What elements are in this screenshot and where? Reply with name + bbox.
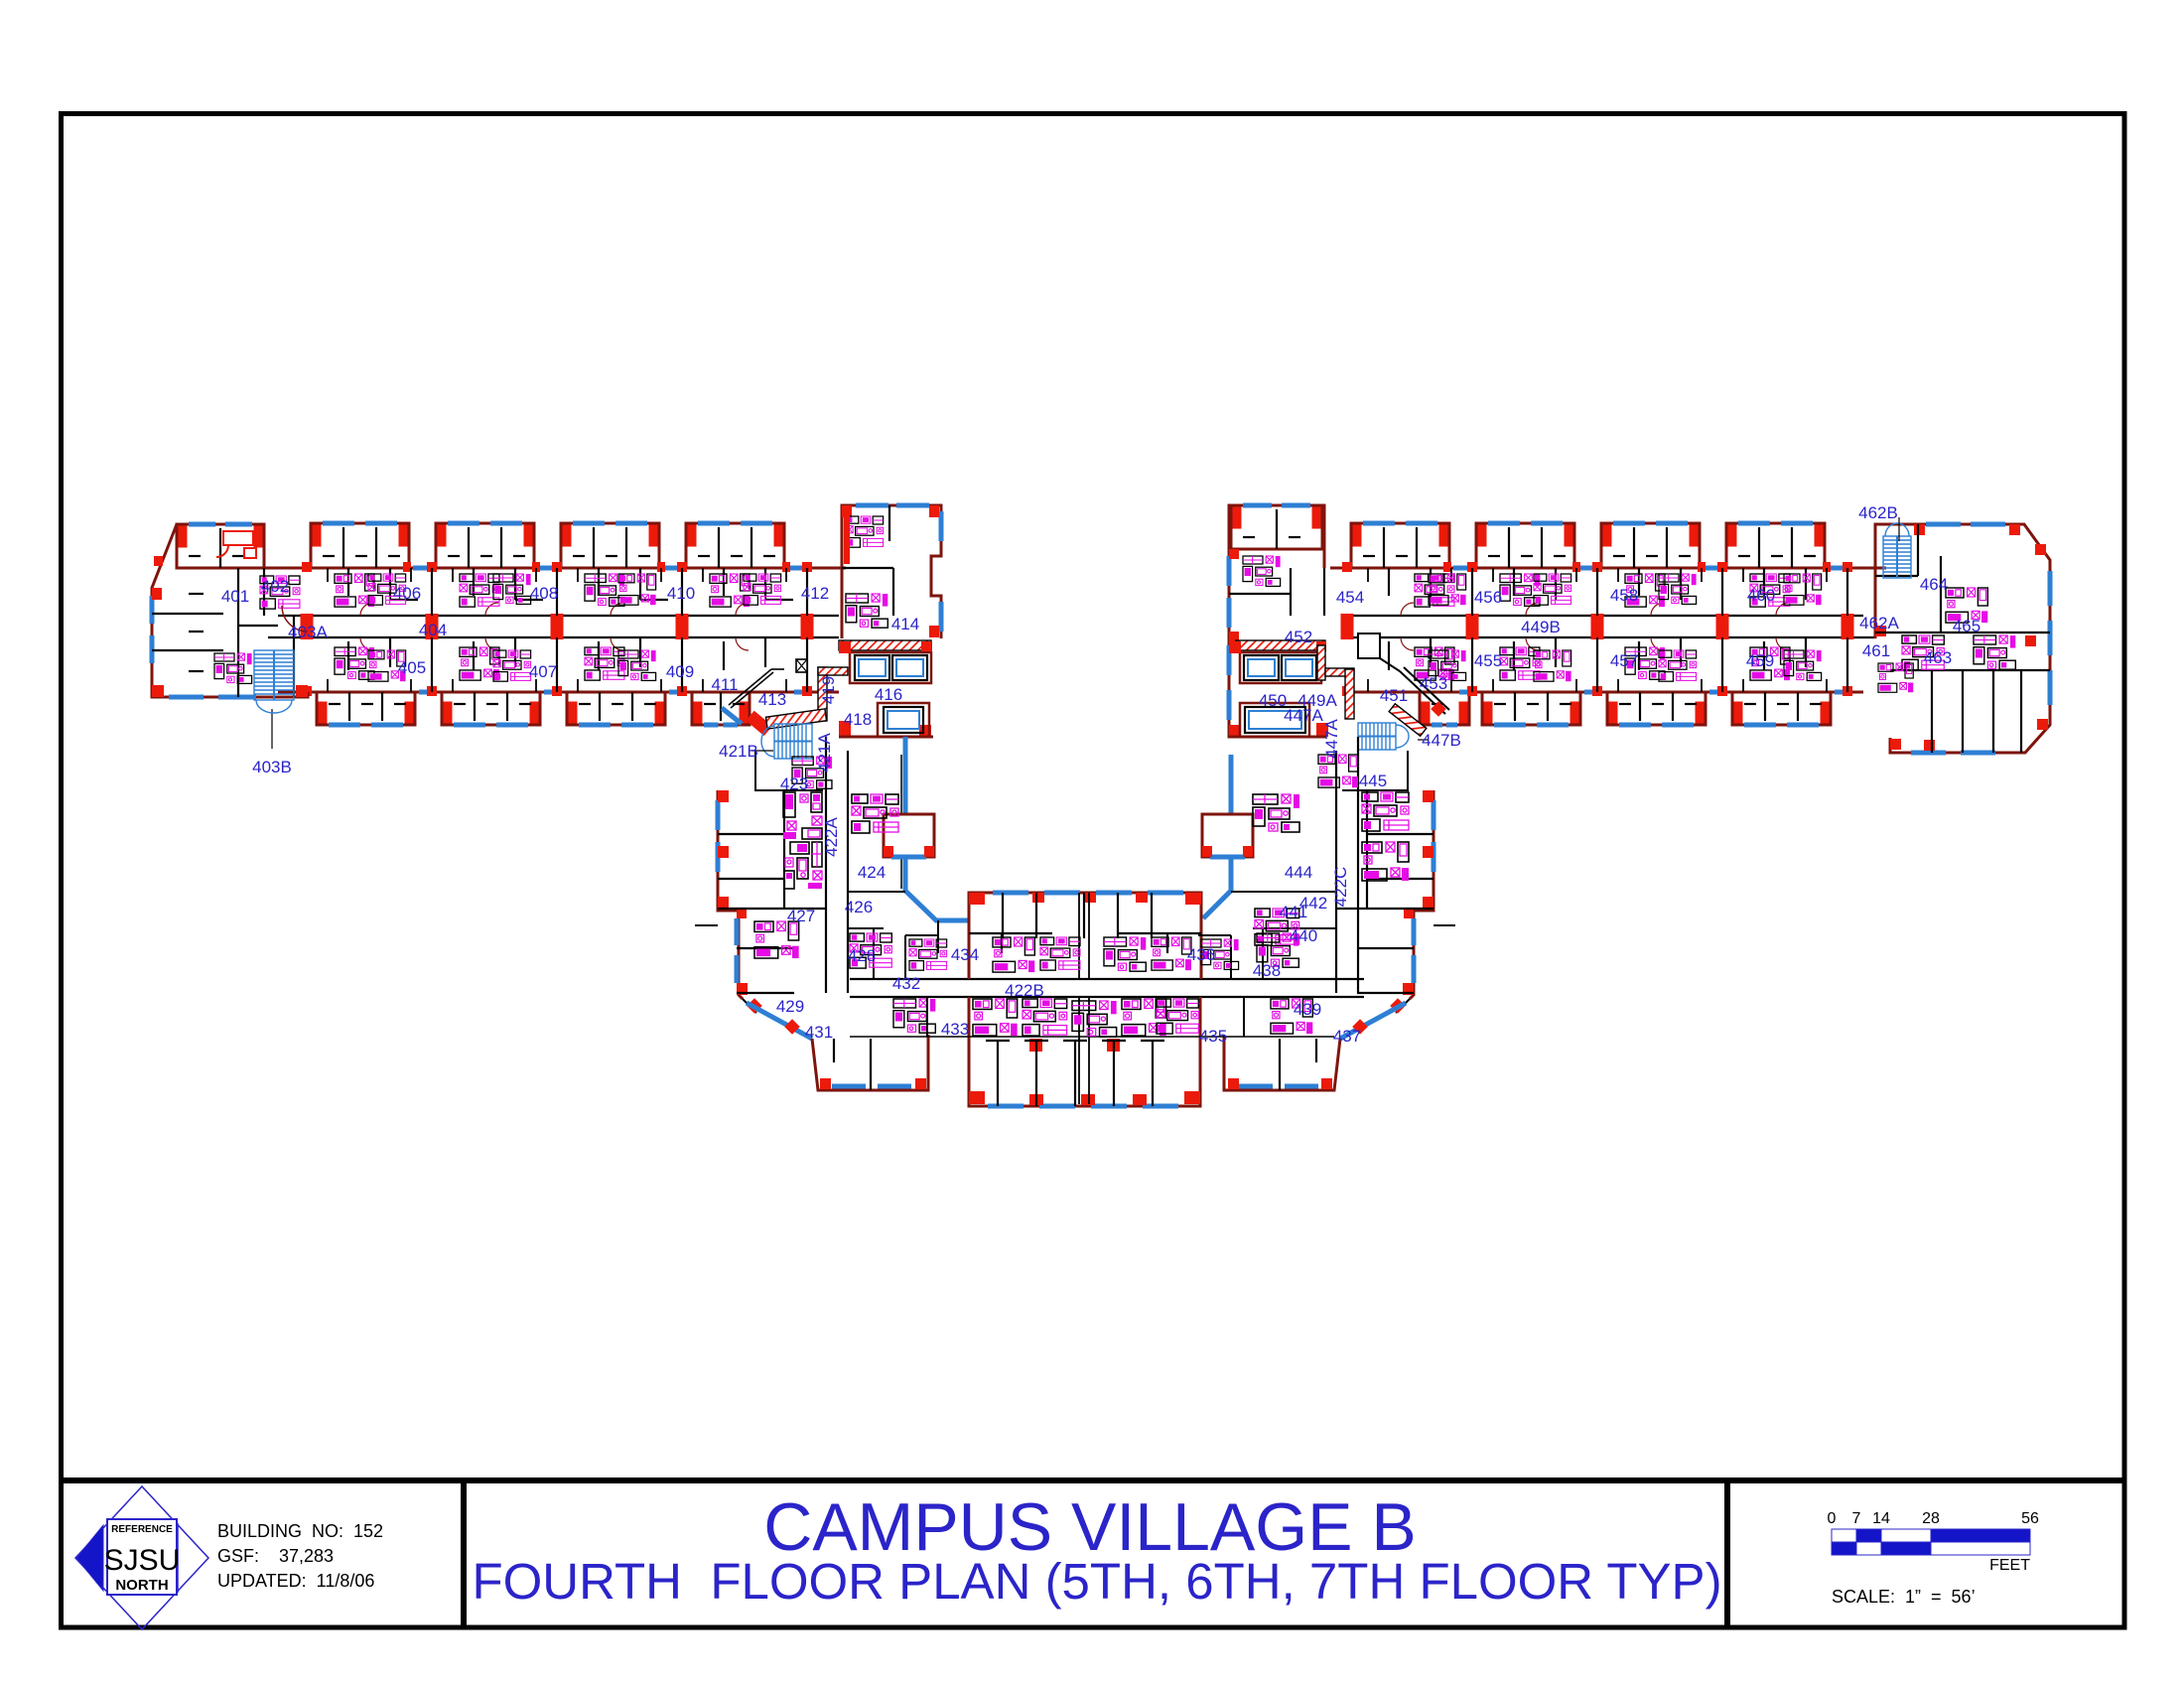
svg-text:410: 410 — [667, 584, 695, 603]
svg-text:419: 419 — [819, 676, 838, 704]
svg-text:454: 454 — [1336, 588, 1364, 607]
svg-text:458: 458 — [1610, 586, 1638, 605]
svg-text:0: 0 — [1828, 1510, 1837, 1527]
svg-text:463: 463 — [1924, 648, 1952, 667]
svg-text:461: 461 — [1862, 641, 1890, 660]
svg-text:426: 426 — [845, 898, 873, 916]
svg-text:UPDATED: 11/8/06: UPDATED: 11/8/06 — [217, 1571, 374, 1591]
svg-text:462B: 462B — [1858, 503, 1898, 522]
svg-text:401: 401 — [221, 587, 249, 606]
svg-text:445: 445 — [1359, 772, 1387, 790]
svg-text:435: 435 — [1199, 1027, 1227, 1046]
svg-text:421A: 421A — [815, 732, 834, 772]
svg-text:436: 436 — [1187, 945, 1215, 964]
svg-text:402: 402 — [261, 577, 289, 596]
svg-text:413: 413 — [758, 690, 786, 709]
svg-text:407: 407 — [529, 662, 557, 681]
svg-text:FOURTH FLOOR PLAN (5TH, 6TH,: FOURTH FLOOR PLAN (5TH, 6TH, 7TH FLOOR T… — [472, 1553, 1721, 1610]
svg-text:7: 7 — [1852, 1510, 1861, 1527]
svg-text:421B: 421B — [719, 742, 758, 761]
svg-text:412: 412 — [801, 584, 829, 603]
svg-text:SCALE: 1” = 56’: SCALE: 1” = 56’ — [1832, 1587, 1976, 1607]
svg-text:452: 452 — [1285, 628, 1312, 646]
svg-text:449B: 449B — [1521, 618, 1561, 636]
svg-text:REFERENCE: REFERENCE — [111, 1524, 173, 1535]
svg-text:423: 423 — [780, 774, 808, 793]
svg-text:403B: 403B — [252, 758, 292, 776]
svg-text:422A: 422A — [822, 816, 841, 856]
svg-text:433: 433 — [941, 1020, 969, 1039]
svg-text:FEET: FEET — [1989, 1557, 2030, 1574]
svg-text:434: 434 — [951, 945, 979, 964]
svg-text:428: 428 — [848, 946, 876, 965]
svg-text:SJSU: SJSU — [104, 1544, 181, 1577]
svg-text:GSF: 37,283: GSF: 37,283 — [217, 1546, 334, 1566]
svg-text:464: 464 — [1920, 575, 1948, 594]
svg-text:432: 432 — [892, 974, 920, 993]
svg-text:431: 431 — [805, 1023, 833, 1042]
svg-text:460: 460 — [1747, 586, 1775, 605]
svg-text:453: 453 — [1420, 674, 1447, 693]
svg-text:405: 405 — [398, 658, 426, 677]
svg-text:439: 439 — [1294, 1000, 1321, 1019]
svg-text:462A: 462A — [1859, 614, 1899, 633]
svg-text:449A: 449A — [1297, 691, 1337, 710]
svg-text:422C: 422C — [1331, 867, 1350, 908]
svg-text:418: 418 — [844, 710, 872, 729]
svg-text:411: 411 — [711, 675, 738, 694]
svg-text:429: 429 — [776, 997, 804, 1016]
svg-text:28: 28 — [1922, 1510, 1940, 1527]
svg-text:404: 404 — [419, 621, 447, 639]
svg-text:447B: 447B — [1422, 731, 1461, 750]
svg-text:444: 444 — [1285, 863, 1312, 882]
svg-text:440: 440 — [1290, 926, 1317, 945]
svg-text:437: 437 — [1333, 1027, 1361, 1046]
svg-text:414: 414 — [891, 615, 919, 633]
svg-text:403A: 403A — [288, 623, 328, 641]
svg-text:455: 455 — [1474, 651, 1502, 670]
svg-text:409: 409 — [666, 662, 694, 681]
svg-text:442: 442 — [1299, 894, 1327, 913]
svg-text:406: 406 — [393, 584, 421, 603]
svg-text:450: 450 — [1259, 691, 1287, 710]
svg-text:457: 457 — [1610, 651, 1638, 670]
svg-text:451: 451 — [1380, 686, 1408, 705]
svg-text:BUILDING NO: 152: BUILDING NO: 152 — [217, 1521, 383, 1541]
svg-text:416: 416 — [875, 685, 902, 704]
svg-text:447A: 447A — [1322, 718, 1341, 758]
svg-text:56: 56 — [2021, 1510, 2039, 1527]
svg-text:424: 424 — [858, 863, 886, 882]
svg-text:465: 465 — [1953, 617, 1980, 635]
svg-text:422B: 422B — [1005, 981, 1044, 1000]
svg-text:14: 14 — [1872, 1510, 1890, 1527]
svg-text:NORTH: NORTH — [115, 1577, 168, 1594]
svg-text:459: 459 — [1746, 651, 1774, 670]
svg-text:456: 456 — [1474, 588, 1502, 607]
svg-text:408: 408 — [530, 584, 558, 603]
svg-text:438: 438 — [1253, 961, 1281, 980]
svg-text:427: 427 — [787, 907, 815, 925]
